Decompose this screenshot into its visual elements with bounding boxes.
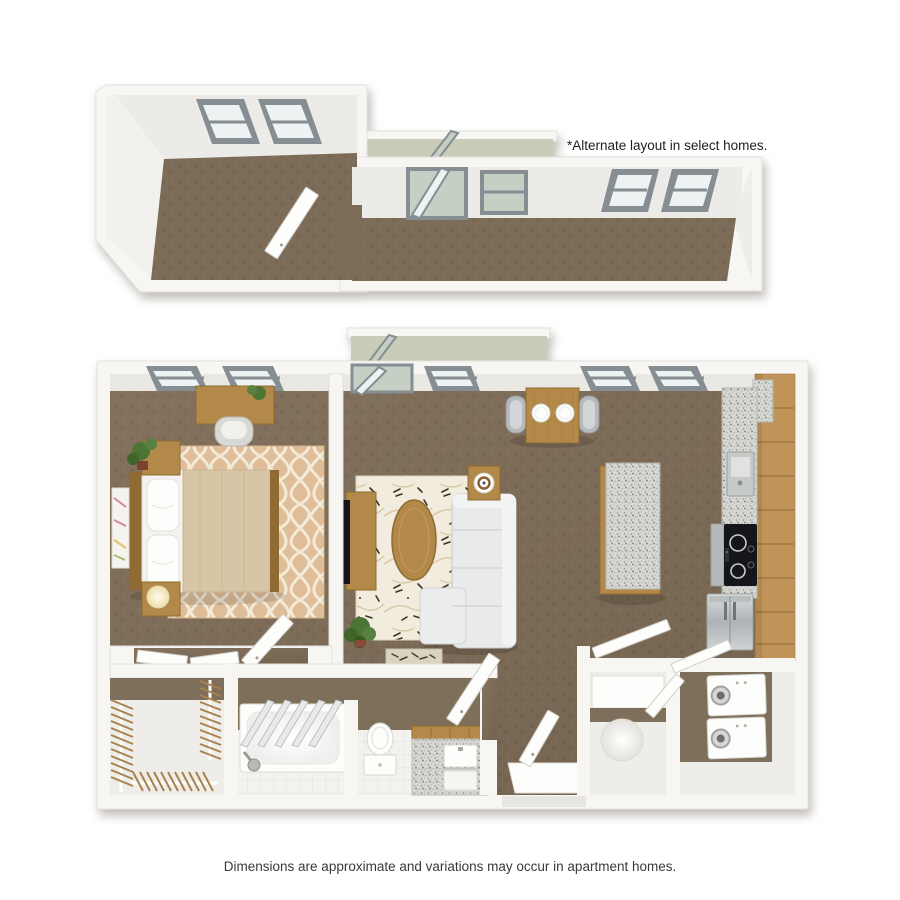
front-door-threshold: [502, 796, 586, 807]
water-heater-closet: [590, 672, 666, 795]
sink-icon: [727, 452, 754, 496]
sink-icon: [444, 771, 477, 790]
wall-closet-bath: [224, 664, 238, 795]
wall-bedroom-living: [329, 374, 343, 664]
dining-set: [506, 388, 599, 448]
floor-plan-page: *Alternate layout in select homes. Dimen…: [0, 0, 900, 900]
lamp-bulb: [154, 593, 162, 601]
tub-end-wall: [344, 700, 358, 795]
chaise: [420, 588, 466, 644]
footboard: [270, 470, 279, 592]
desk-chair: [215, 417, 253, 446]
nightstand: [142, 582, 180, 616]
carpet-texture: [151, 153, 357, 280]
main-floor-plan: [97, 328, 808, 809]
bathroom: [238, 678, 488, 795]
side-table: [468, 466, 500, 500]
dimensions-disclaimer: Dimensions are approximate and variation…: [0, 859, 900, 874]
water-heater-icon: [601, 719, 643, 761]
blanket: [183, 470, 270, 592]
balcony: [347, 328, 550, 365]
bed: [129, 470, 279, 592]
patio-door-icon: [352, 365, 412, 395]
living-room: [341, 466, 518, 665]
chair-seat: [510, 400, 522, 429]
wall-art: [112, 488, 129, 568]
alternate-layout-note: *Alternate layout in select homes.: [567, 138, 767, 153]
patio-door-icon: [408, 168, 466, 218]
vanity: [412, 726, 488, 795]
headboard: [129, 472, 142, 590]
doormat: [508, 763, 588, 793]
alternate-layout-plan: [96, 85, 762, 292]
pillow: [147, 535, 179, 587]
walk-in-closet: [110, 678, 224, 795]
doorway-opening: [340, 205, 362, 271]
leaf-doormat: [386, 649, 442, 665]
dryer-icon: [707, 717, 766, 759]
chair-seat: [583, 400, 595, 429]
pillow: [147, 479, 179, 531]
refrigerator-icon: [707, 594, 753, 650]
window-icon: [424, 366, 480, 391]
plant-leaf: [247, 385, 257, 395]
faucet-icon: [458, 747, 463, 751]
bedroom-room: [106, 95, 357, 280]
stove-icon: [711, 524, 757, 586]
washer-icon: [707, 674, 766, 716]
tv-console: [346, 492, 376, 590]
wall-hall-bath: [110, 664, 497, 678]
window-icon: [482, 172, 526, 213]
floor-plan-graphic: [0, 0, 900, 900]
carpet-texture: [352, 218, 736, 281]
bathroom-doorway: [482, 678, 497, 740]
kitchen-island: [598, 463, 666, 605]
